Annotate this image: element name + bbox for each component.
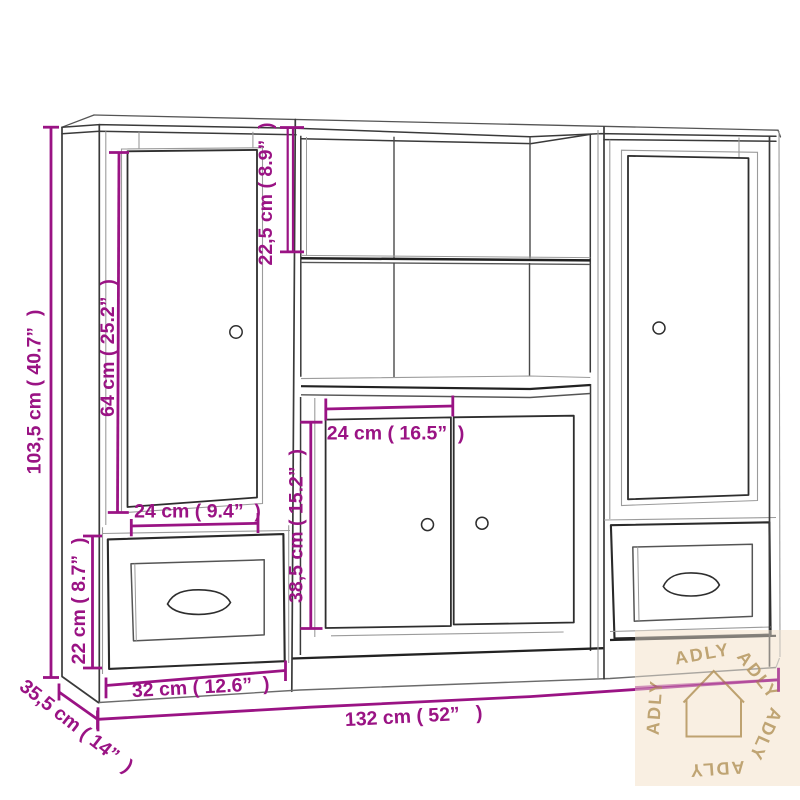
svg-text:ADLY: ADLY [688, 757, 745, 781]
svg-text:22,5 cm ( 8.9” ): 22,5 cm ( 8.9” ) [255, 122, 277, 265]
svg-text:38,5 cm ( 15.2” ): 38,5 cm ( 15.2” ) [286, 449, 308, 603]
svg-text:22 cm ( 8.7” ): 22 cm ( 8.7” ) [68, 538, 90, 665]
svg-text:24 cm ( 9.4” ): 24 cm ( 9.4” ) [134, 501, 261, 523]
svg-text:103,5 cm ( 40.7” ): 103,5 cm ( 40.7” ) [24, 310, 46, 475]
svg-text:24 cm ( 16.5” ): 24 cm ( 16.5” ) [327, 423, 465, 445]
svg-text:64 cm ( 25.2” ): 64 cm ( 25.2” ) [97, 279, 119, 417]
